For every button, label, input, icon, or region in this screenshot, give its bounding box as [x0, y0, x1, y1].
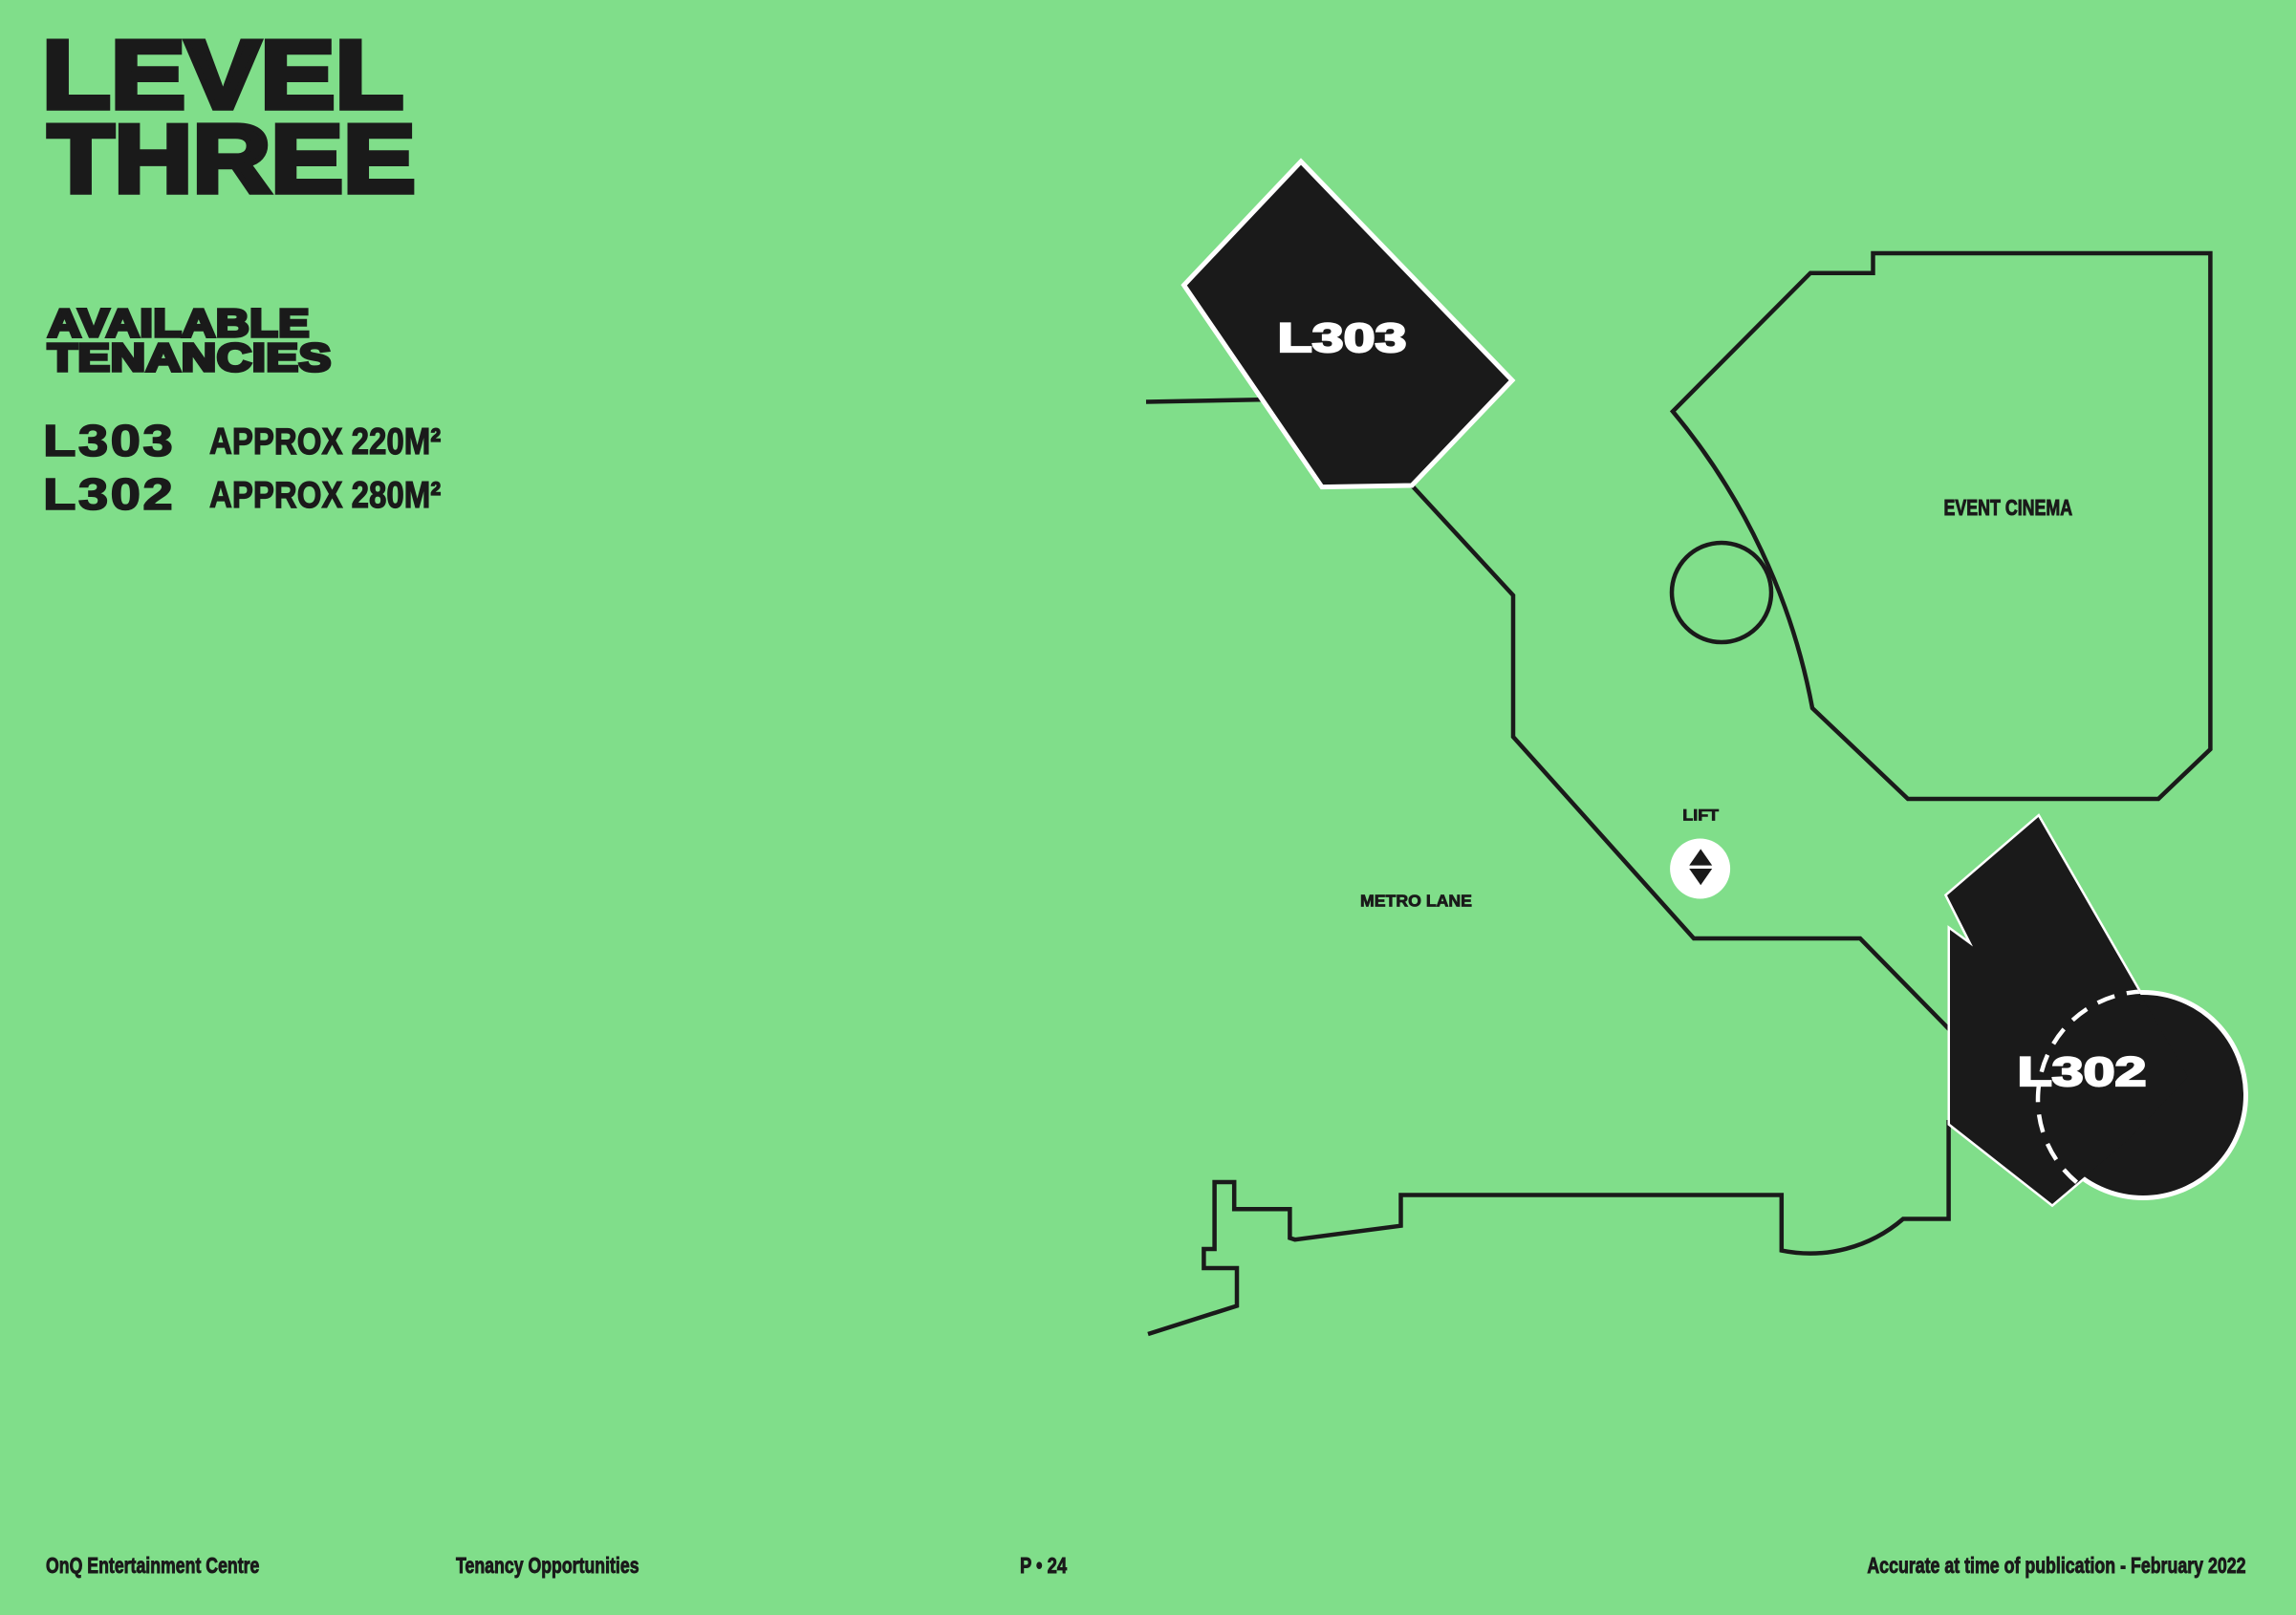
svg-text:L303: L303 — [1278, 316, 1407, 361]
svg-text:METRO LANE: METRO LANE — [1360, 892, 1472, 911]
svg-text:L302: L302 — [2018, 1050, 2147, 1095]
svg-text:LIFT: LIFT — [1682, 807, 1719, 825]
svg-text:EVENT CINEMA: EVENT CINEMA — [1944, 495, 2073, 520]
